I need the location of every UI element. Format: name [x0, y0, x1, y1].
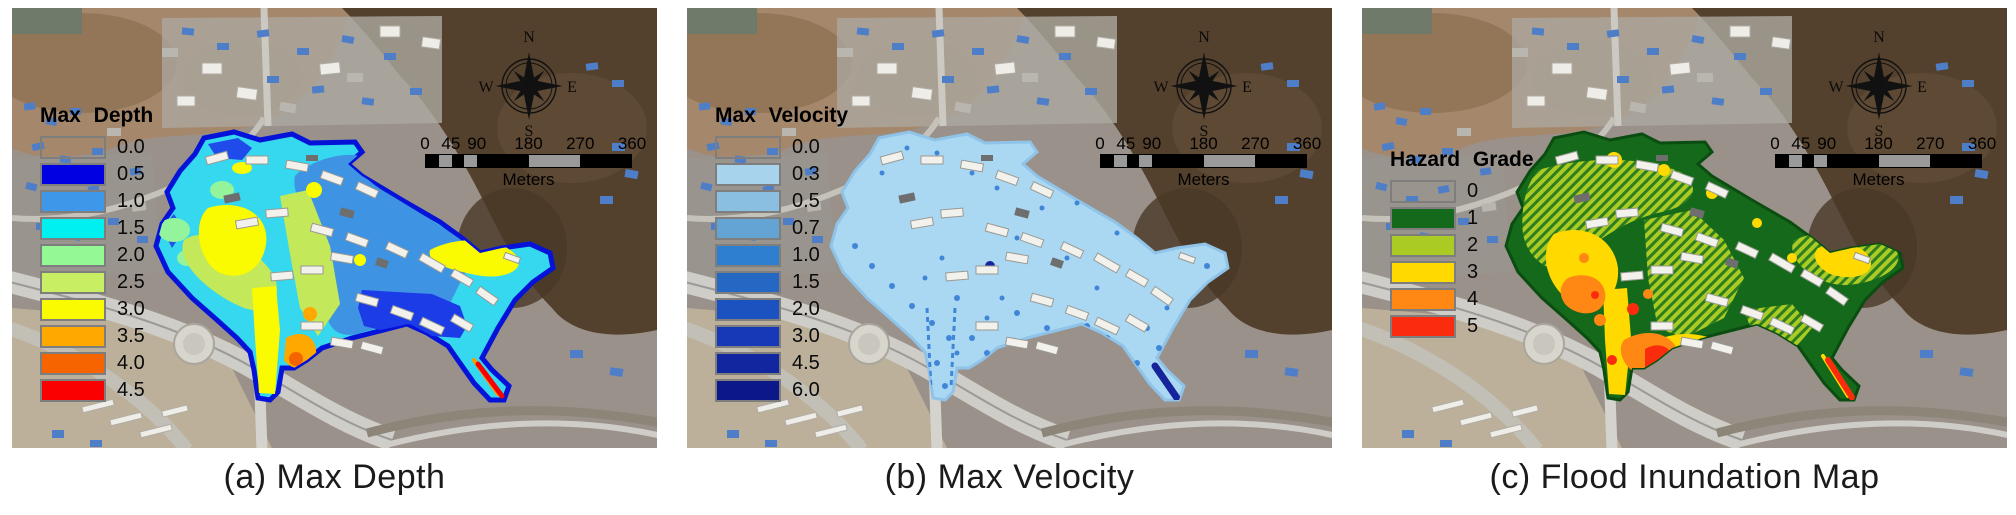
scalebar-tick: 270 — [1916, 134, 1944, 154]
legend-swatch — [40, 352, 106, 375]
legend-label: 3 — [1467, 261, 1478, 284]
scalebar: 0 45 90 180 270 360 Meters — [1775, 134, 1982, 190]
max-velocity-map: Max Velocity 0.0 0.3 0.5 0.7 1.0 1.5 2.0… — [687, 8, 1332, 448]
legend-title: Hazard Grade — [1390, 148, 1534, 172]
legend-label: 0 — [1467, 180, 1478, 203]
scalebar-tick: 0 — [420, 134, 429, 154]
legend-entry: 0.5 — [715, 190, 848, 213]
legend-entry: 4 — [1390, 288, 1534, 311]
legend-label: 0.5 — [792, 190, 820, 213]
compass-west-label: W — [1153, 79, 1169, 96]
legend-entry: 2 — [1390, 234, 1534, 257]
figure-row: Max Depth 0.0 0.5 1.0 1.5 2.0 2.5 3.0 3.… — [0, 0, 2016, 497]
legend-swatch — [715, 298, 781, 321]
legend-swatch — [1390, 207, 1456, 230]
scalebar-tick: 180 — [1864, 134, 1892, 154]
scalebar-tick: 180 — [1189, 134, 1217, 154]
legend-swatch — [40, 271, 106, 294]
scalebar-tick: 360 — [618, 134, 646, 154]
legend-swatch — [1390, 261, 1456, 284]
legend-entry: 4.0 — [40, 352, 153, 375]
legend-label: 1.5 — [117, 217, 145, 240]
compass-rose: N S W E — [1152, 26, 1256, 138]
legend-swatch — [40, 217, 106, 240]
compass-rose: N S W E — [1827, 26, 1931, 138]
legend-label: 0.7 — [792, 217, 820, 240]
legend-entry: 3.0 — [715, 325, 848, 348]
legend-entry: 4.5 — [40, 379, 153, 402]
legend-label: 2 — [1467, 234, 1478, 257]
legend-label: 2.5 — [117, 271, 145, 294]
legend-swatch — [715, 190, 781, 213]
legend-label: 4.0 — [117, 352, 145, 375]
legend-label: 4.5 — [792, 352, 820, 375]
scalebar-tick: 270 — [566, 134, 594, 154]
legend-entry: 1.5 — [715, 271, 848, 294]
legend-entry: 2.5 — [40, 271, 153, 294]
compass-east-label: E — [1917, 79, 1927, 96]
legend-label: 4 — [1467, 288, 1478, 311]
scalebar-tick: 0 — [1095, 134, 1104, 154]
legend-entry: 0.3 — [715, 163, 848, 186]
legend-entry: 0.0 — [40, 136, 153, 159]
hazard-grade-legend: Hazard Grade 0 1 2 3 4 5 — [1390, 148, 1534, 342]
scalebar-tick: 270 — [1241, 134, 1269, 154]
scalebar-tick: 90 — [467, 134, 486, 154]
legend-title: Max Velocity — [715, 104, 848, 128]
scalebar-tick: 45 — [441, 134, 460, 154]
legend-label: 4.5 — [117, 379, 145, 402]
legend-swatch — [40, 325, 106, 348]
legend-swatch — [715, 325, 781, 348]
legend-swatch — [1390, 288, 1456, 311]
scalebar-unit: Meters — [1100, 170, 1307, 190]
compass-north-label: N — [1873, 29, 1885, 46]
legend-label: 3.0 — [117, 298, 145, 321]
legend-swatch — [715, 244, 781, 267]
legend-entry: 4.5 — [715, 352, 848, 375]
legend-label: 3.5 — [117, 325, 145, 348]
legend-swatch — [40, 190, 106, 213]
legend-entry: 1.5 — [40, 217, 153, 240]
legend-swatch — [40, 136, 106, 159]
legend-entry: 1 — [1390, 207, 1534, 230]
scalebar-labels: 0 45 90 180 270 360 — [1775, 134, 1982, 154]
legend-label: 1 — [1467, 207, 1478, 230]
legend-label: 1.0 — [117, 190, 145, 213]
legend-entry: 2.0 — [715, 298, 848, 321]
legend-swatch — [1390, 315, 1456, 338]
compass-west-label: W — [1828, 79, 1844, 96]
max-depth-legend: Max Depth 0.0 0.5 1.0 1.5 2.0 2.5 3.0 3.… — [40, 104, 153, 406]
max-velocity-legend: Max Velocity 0.0 0.3 0.5 0.7 1.0 1.5 2.0… — [715, 104, 848, 406]
max-depth-map: Max Depth 0.0 0.5 1.0 1.5 2.0 2.5 3.0 3.… — [12, 8, 657, 448]
scalebar: 0 45 90 180 270 360 Meters — [1100, 134, 1307, 190]
scalebar-unit: Meters — [1775, 170, 1982, 190]
compass-east-label: E — [1242, 79, 1252, 96]
legend-entry: 3 — [1390, 261, 1534, 284]
caption-max-depth: (a) Max Depth — [12, 458, 657, 497]
legend-swatch — [1390, 234, 1456, 257]
legend-entry: 5 — [1390, 315, 1534, 338]
legend-swatch — [40, 379, 106, 402]
legend-swatch — [715, 163, 781, 186]
legend-entry: 3.0 — [40, 298, 153, 321]
scalebar-tick: 90 — [1817, 134, 1836, 154]
scalebar-tick: 180 — [514, 134, 542, 154]
legend-swatch — [1390, 180, 1456, 203]
legend-entry: 2.0 — [40, 244, 153, 267]
scalebar-labels: 0 45 90 180 270 360 — [1100, 134, 1307, 154]
scalebar-bar — [1775, 154, 1982, 168]
compass-north-label: N — [1198, 29, 1210, 46]
legend-swatch — [715, 271, 781, 294]
scalebar: 0 45 90 180 270 360 Meters — [425, 134, 632, 190]
legend-label: 0.3 — [792, 163, 820, 186]
panel-max-velocity: Max Velocity 0.0 0.3 0.5 0.7 1.0 1.5 2.0… — [687, 8, 1332, 497]
legend-swatch — [40, 244, 106, 267]
legend-entry: 0.7 — [715, 217, 848, 240]
legend-entry: 0.5 — [40, 163, 153, 186]
scalebar-unit: Meters — [425, 170, 632, 190]
compass-star-icon — [495, 52, 562, 119]
legend-label: 0.5 — [117, 163, 145, 186]
caption-flood-inundation: (c) Flood Inundation Map — [1362, 458, 2007, 497]
legend-entry: 3.5 — [40, 325, 153, 348]
compass-star-icon — [1170, 52, 1237, 119]
legend-swatch — [715, 379, 781, 402]
compass-rose: N S W E — [477, 26, 581, 138]
legend-label: 3.0 — [792, 325, 820, 348]
legend-swatch — [715, 217, 781, 240]
legend-label: 1.0 — [792, 244, 820, 267]
scalebar-labels: 0 45 90 180 270 360 — [425, 134, 632, 154]
scalebar-tick: 0 — [1770, 134, 1779, 154]
flood-inundation-map: Hazard Grade 0 1 2 3 4 5 N S W E — [1362, 8, 2007, 448]
legend-entry: 1.0 — [715, 244, 848, 267]
legend-swatch — [40, 163, 106, 186]
scalebar-tick: 45 — [1791, 134, 1810, 154]
legend-swatch — [715, 352, 781, 375]
compass-north-label: N — [523, 29, 535, 46]
legend-label: 0.0 — [117, 136, 145, 159]
legend-label: 6.0 — [792, 379, 820, 402]
scalebar-bar — [425, 154, 632, 168]
legend-label: 1.5 — [792, 271, 820, 294]
scalebar-tick: 360 — [1293, 134, 1321, 154]
legend-label: 0.0 — [792, 136, 820, 159]
scalebar-tick: 90 — [1142, 134, 1161, 154]
legend-label: 2.0 — [117, 244, 145, 267]
scalebar-tick: 45 — [1116, 134, 1135, 154]
compass-west-label: W — [478, 79, 494, 96]
legend-title: Max Depth — [40, 104, 153, 128]
legend-swatch — [40, 298, 106, 321]
legend-entry: 0.0 — [715, 136, 848, 159]
scalebar-tick: 360 — [1968, 134, 1996, 154]
legend-swatch — [715, 136, 781, 159]
scalebar-bar — [1100, 154, 1307, 168]
legend-label: 5 — [1467, 315, 1478, 338]
panel-max-depth: Max Depth 0.0 0.5 1.0 1.5 2.0 2.5 3.0 3.… — [12, 8, 657, 497]
compass-star-icon — [1845, 52, 1912, 119]
legend-entry: 0 — [1390, 180, 1534, 203]
legend-label: 2.0 — [792, 298, 820, 321]
legend-entry: 1.0 — [40, 190, 153, 213]
compass-east-label: E — [567, 79, 577, 96]
panel-flood-inundation: Hazard Grade 0 1 2 3 4 5 N S W E — [1362, 8, 2007, 497]
caption-max-velocity: (b) Max Velocity — [687, 458, 1332, 497]
legend-entry: 6.0 — [715, 379, 848, 402]
